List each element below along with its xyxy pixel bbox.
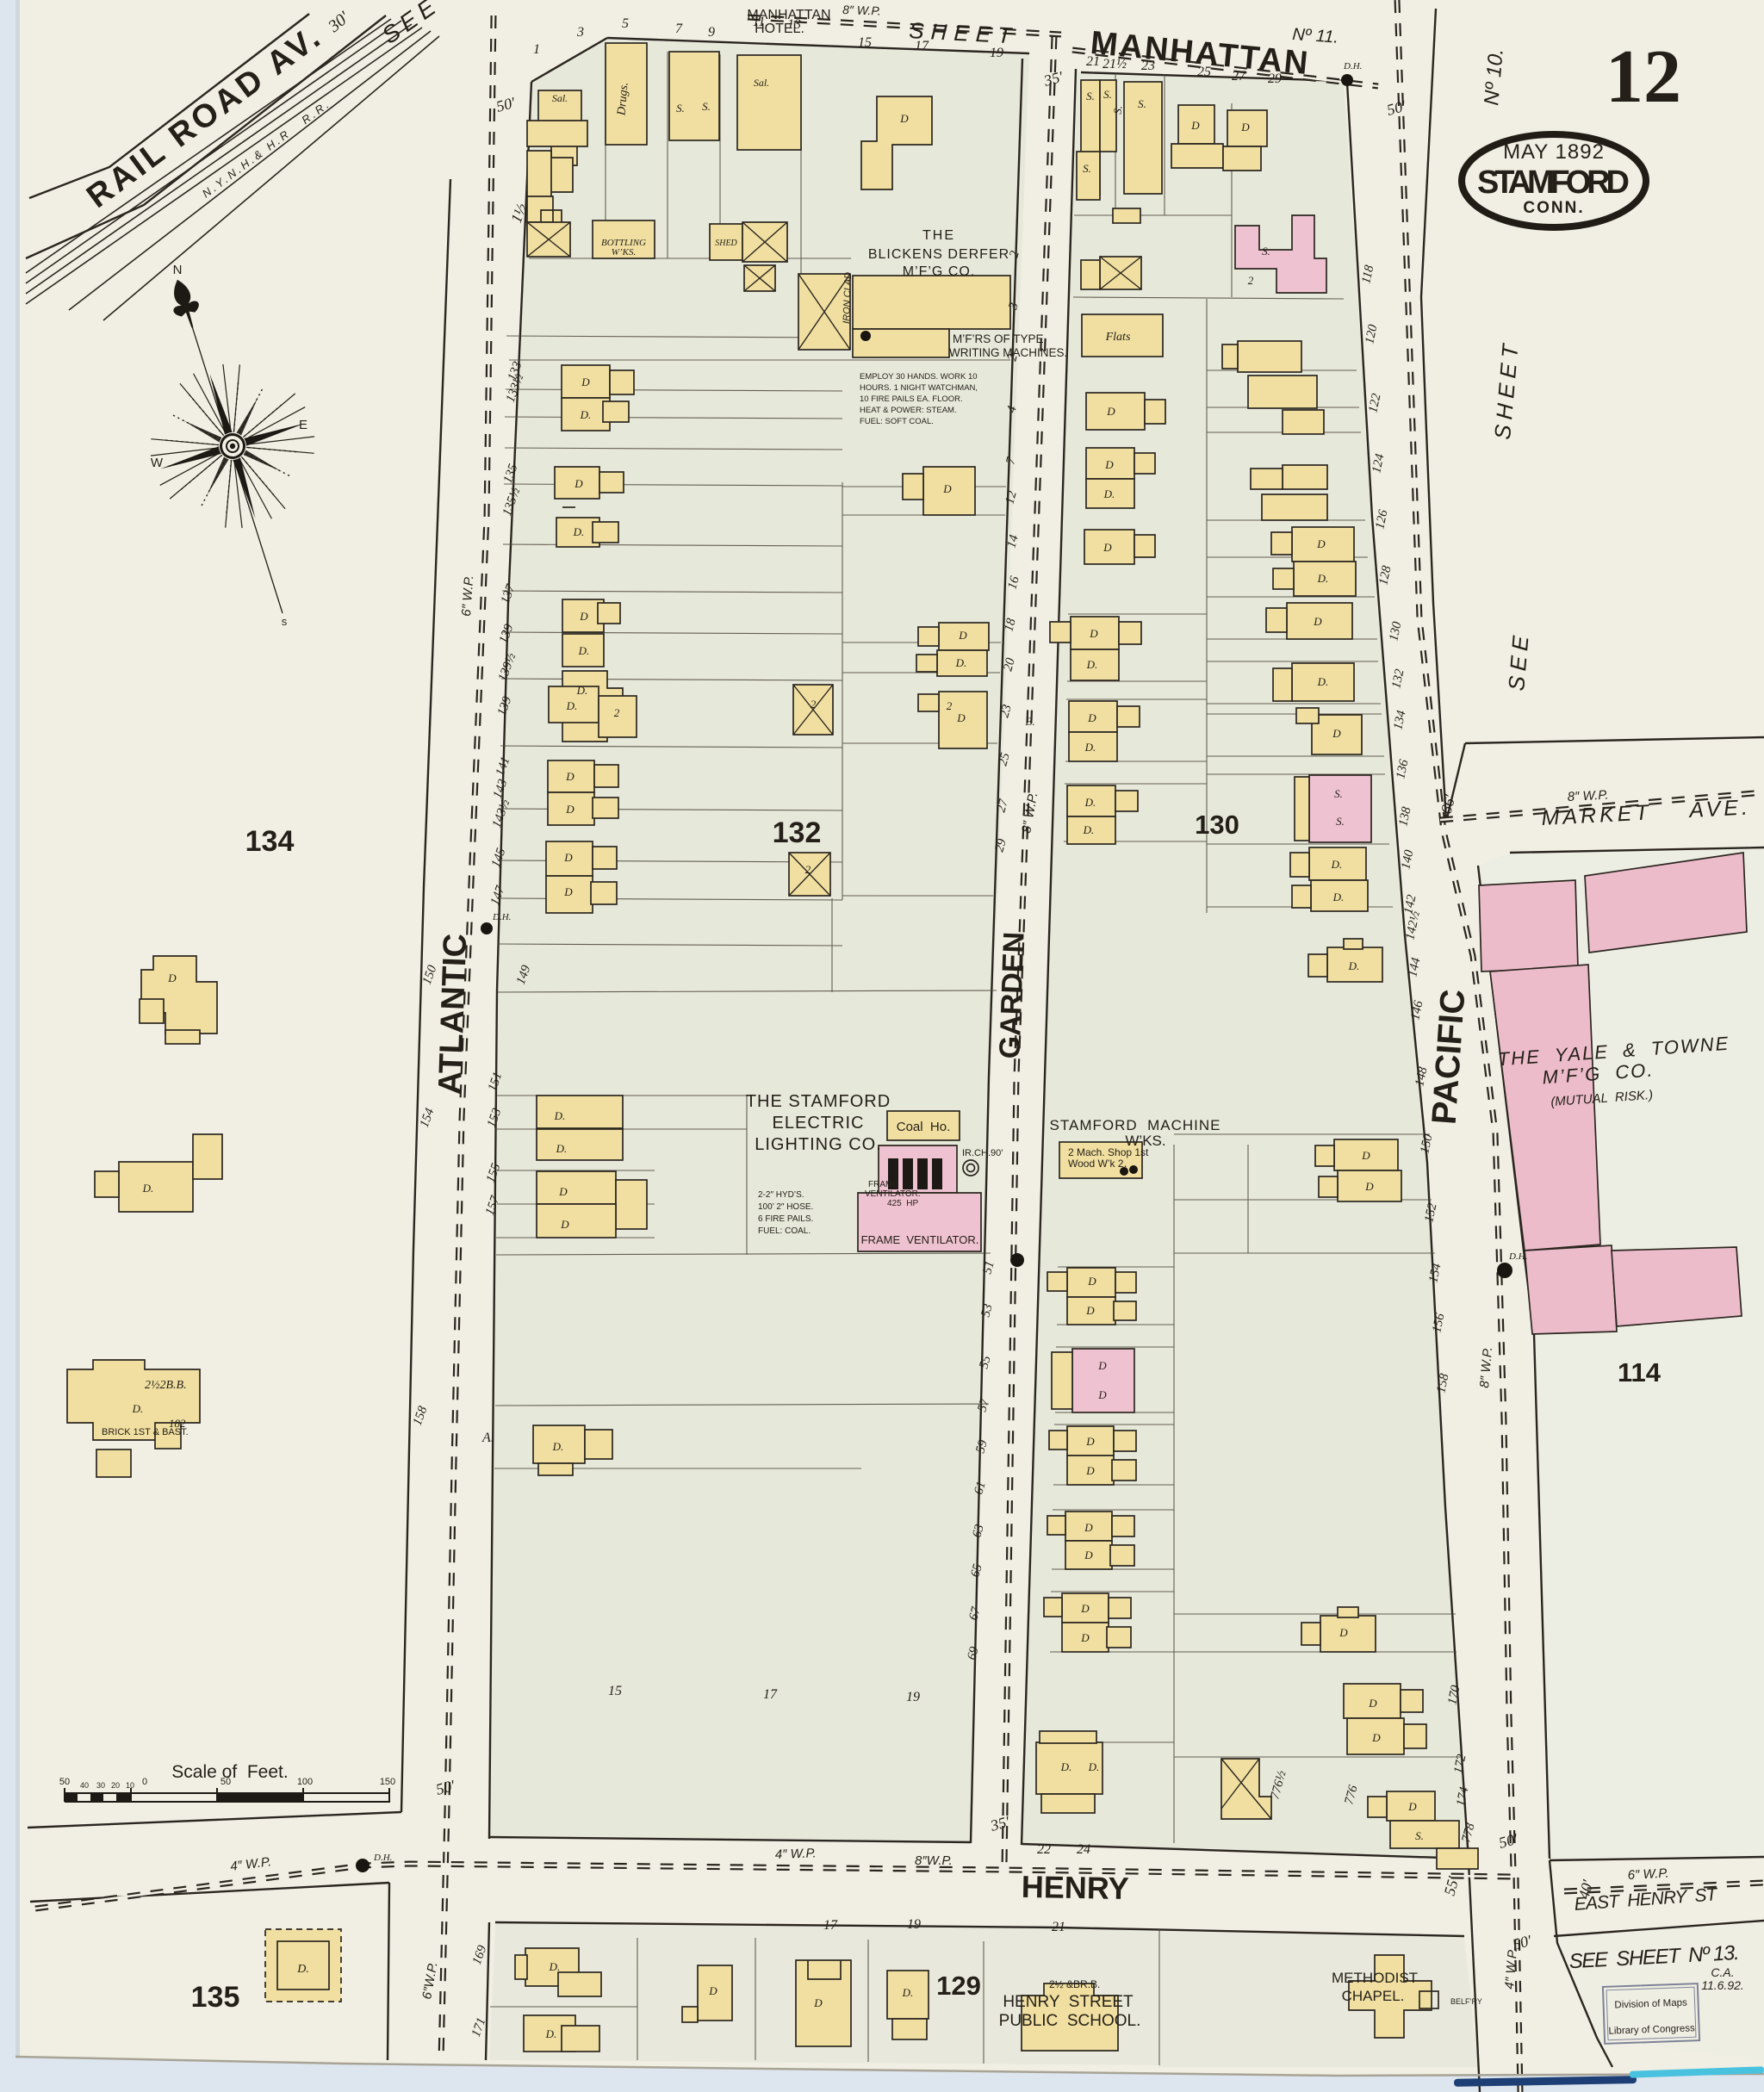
svg-text:S.: S. — [676, 102, 685, 115]
svg-text:D: D — [1106, 405, 1115, 418]
svg-text:8″W.P.: 8″W.P. — [915, 1853, 953, 1868]
svg-text:21: 21 — [1086, 54, 1100, 69]
svg-text:6 FIRE PAILS.: 6 FIRE PAILS. — [758, 1214, 813, 1224]
svg-text:E: E — [299, 418, 307, 432]
svg-text:D.: D. — [1348, 959, 1360, 972]
svg-text:D: D — [942, 482, 952, 495]
svg-text:S.: S. — [1103, 88, 1112, 101]
svg-text:100: 100 — [297, 1777, 313, 1787]
svg-text:D: D — [1407, 1800, 1417, 1813]
svg-text:D: D — [1332, 727, 1341, 740]
svg-text:S.: S. — [1262, 245, 1270, 258]
svg-text:EMPLOY 30 HANDS. WORK 10: EMPLOY 30 HANDS. WORK 10 — [860, 372, 978, 382]
svg-text:D: D — [563, 885, 573, 898]
svg-text:LIGHTING CO.: LIGHTING CO. — [755, 1135, 882, 1154]
svg-text:W: W — [151, 456, 164, 470]
svg-text:BRICK 1ST & BAST.: BRICK 1ST & BAST. — [102, 1427, 189, 1437]
svg-text:D: D — [1361, 1149, 1370, 1162]
svg-text:D.: D. — [545, 2027, 557, 2040]
svg-text:24: 24 — [1077, 1842, 1090, 1857]
svg-text:15: 15 — [608, 1684, 622, 1698]
svg-text:D.: D. — [576, 684, 588, 697]
svg-text:M’F’G CO.: M’F’G CO. — [903, 264, 976, 279]
svg-text:425 HP: 425 HP — [887, 1199, 918, 1208]
svg-text:s: s — [282, 615, 288, 628]
svg-text:Coal Ho.: Coal Ho. — [897, 1120, 951, 1134]
svg-text:D.: D. — [1332, 891, 1345, 903]
svg-text:1: 1 — [533, 42, 540, 57]
svg-text:22: 22 — [1037, 1842, 1051, 1857]
svg-text:S.: S. — [1086, 90, 1095, 102]
svg-text:D: D — [1190, 119, 1200, 132]
svg-text:100’ 2″ HOSE.: 100’ 2″ HOSE. — [758, 1202, 813, 1212]
svg-text:150: 150 — [380, 1777, 395, 1787]
svg-text:D: D — [1313, 615, 1322, 628]
svg-text:C.A.: C.A. — [1711, 1965, 1734, 1979]
svg-text:D.: D. — [580, 408, 592, 421]
svg-text:50: 50 — [59, 1777, 70, 1787]
svg-text:D: D — [899, 112, 909, 125]
svg-text:METHODIST: METHODIST — [1332, 1970, 1418, 1986]
svg-text:FRAME VENTILATOR.: FRAME VENTILATOR. — [861, 1233, 979, 1246]
svg-text:S.: S. — [1334, 787, 1343, 800]
svg-text:MAY 1892: MAY 1892 — [1503, 140, 1605, 164]
svg-text:D.: D. — [902, 1986, 914, 1999]
svg-text:19: 19 — [990, 46, 1003, 60]
svg-text:W’KS.: W’KS. — [612, 247, 636, 258]
svg-text:10 FIRE PAILS EA. FLOOR.: 10 FIRE PAILS EA. FLOOR. — [860, 394, 963, 404]
svg-text:D: D — [956, 711, 966, 724]
svg-text:21½: 21½ — [1102, 57, 1127, 71]
svg-text:D: D — [1364, 1180, 1374, 1193]
svg-text:D: D — [558, 1185, 568, 1198]
svg-text:6″ W.P.: 6″ W.P. — [459, 574, 476, 617]
svg-text:VENTILATOR.: VENTILATOR. — [865, 1189, 921, 1199]
svg-text:B.: B. — [1025, 715, 1034, 728]
svg-text:D: D — [565, 770, 575, 783]
svg-text:D: D — [167, 972, 177, 984]
svg-text:D: D — [1080, 1631, 1090, 1644]
svg-text:Wood W’k 2․: Wood W’k 2․ — [1068, 1158, 1127, 1170]
svg-text:ATLANTIC: ATLANTIC — [432, 933, 475, 1096]
svg-text:FUEL: COAL.: FUEL: COAL. — [758, 1226, 811, 1236]
svg-text:132: 132 — [773, 816, 822, 849]
svg-text:D.: D. — [556, 1142, 568, 1155]
svg-text:6″ W.P.: 6″ W.P. — [1627, 1866, 1669, 1883]
svg-text:D.: D. — [549, 1960, 561, 1973]
svg-text:D: D — [581, 376, 590, 388]
svg-text:D.: D. — [1317, 572, 1329, 585]
svg-text:Flats: Flats — [1105, 331, 1131, 344]
svg-text:19: 19 — [907, 1917, 921, 1932]
svg-text:D.: D. — [566, 699, 578, 712]
svg-text:D: D — [1089, 627, 1098, 640]
svg-text:S.: S. — [702, 100, 711, 113]
svg-text:19: 19 — [906, 1690, 920, 1704]
svg-text:13: 13 — [787, 17, 801, 32]
svg-text:D: D — [560, 1218, 569, 1231]
svg-text:23: 23 — [1141, 59, 1155, 73]
svg-text:D: D — [958, 629, 967, 642]
svg-text:114: 114 — [1618, 1357, 1662, 1387]
svg-text:11.6.92.: 11.6.92. — [1701, 1978, 1744, 1992]
svg-text:D.: D. — [578, 644, 590, 657]
svg-text:S.: S. — [1111, 105, 1125, 115]
svg-text:D: D — [1085, 1464, 1095, 1477]
svg-text:S.: S. — [1083, 162, 1091, 175]
svg-text:2: 2 — [805, 863, 811, 876]
svg-text:D.H.: D.H. — [1343, 61, 1362, 71]
svg-text:CONN.: CONN. — [1523, 199, 1584, 217]
svg-text:BLICKENS DERFER: BLICKENS DERFER — [868, 247, 1009, 262]
svg-text:M’F’RS OF TYPE: M’F’RS OF TYPE — [953, 332, 1044, 345]
svg-text:D.: D. — [1086, 658, 1098, 671]
svg-text:D.: D. — [1317, 675, 1329, 688]
svg-text:2-2″ HYD’S.: 2-2″ HYD’S. — [758, 1190, 804, 1200]
svg-text:2: 2 — [1248, 274, 1254, 287]
svg-text:D.: D. — [573, 525, 585, 538]
svg-text:D: D — [1084, 1521, 1093, 1534]
svg-text:21: 21 — [1052, 1920, 1065, 1934]
svg-text:10: 10 — [126, 1781, 134, 1790]
svg-text:N: N — [173, 263, 183, 277]
svg-text:D: D — [1316, 537, 1326, 550]
svg-text:D: D — [574, 477, 583, 490]
svg-text:2: 2 — [811, 698, 817, 711]
svg-text:D: D — [1080, 1602, 1090, 1615]
svg-text:D.: D. — [1088, 1760, 1100, 1773]
svg-text:20: 20 — [111, 1781, 120, 1790]
svg-text:50: 50 — [220, 1777, 231, 1787]
svg-text:Sal.: Sal. — [754, 77, 769, 89]
svg-text:D: D — [708, 1984, 717, 1997]
svg-text:D.H.: D.H. — [1508, 1251, 1527, 1262]
svg-text:8″ W.P.: 8″ W.P. — [1567, 788, 1609, 804]
svg-text:0: 0 — [142, 1777, 147, 1787]
svg-text:129: 129 — [936, 1971, 981, 2001]
svg-text:Nº 10.: Nº 10. — [1480, 47, 1508, 106]
svg-text:D: D — [1085, 1304, 1095, 1317]
svg-text:SHED: SHED — [715, 239, 737, 248]
svg-text:17: 17 — [823, 1918, 838, 1933]
svg-text:HENRY: HENRY — [1022, 1869, 1129, 1906]
svg-text:STAMFORD: STAMFORD — [1477, 165, 1630, 201]
svg-text:2½ &BR.B.: 2½ &BR.B. — [1049, 1978, 1100, 1990]
svg-text:FRAME: FRAME — [868, 1180, 898, 1189]
svg-text:D.: D. — [142, 1182, 154, 1195]
svg-text:THE STAMFORD: THE STAMFORD — [746, 1092, 891, 1111]
svg-text:9: 9 — [708, 25, 715, 40]
svg-text:CHAPEL.: CHAPEL. — [1342, 1988, 1405, 2004]
svg-text:D: D — [565, 803, 575, 816]
svg-text:D.: D. — [955, 656, 967, 669]
svg-text:25: 25 — [1197, 65, 1211, 79]
svg-text:5: 5 — [622, 16, 629, 31]
svg-text:8″ W.P.: 8″ W.P. — [842, 3, 881, 18]
svg-text:STAMFORD MACHINE: STAMFORD MACHINE — [1050, 1117, 1221, 1133]
svg-text:2: 2 — [947, 699, 953, 712]
svg-text:A.: A. — [481, 1431, 494, 1445]
svg-text:HEAT & POWER: STEAM.: HEAT & POWER: STEAM. — [860, 406, 957, 415]
svg-text:D.: D. — [296, 1963, 309, 1976]
svg-text:ELECTRIC: ELECTRIC — [773, 1114, 865, 1133]
svg-text:D: D — [1084, 1549, 1093, 1561]
svg-text:D: D — [813, 1996, 823, 2009]
svg-text:Sal.: Sal. — [552, 92, 568, 104]
svg-text:D.: D. — [1060, 1760, 1072, 1773]
svg-text:BELF’RY: BELF’RY — [1450, 1997, 1482, 2006]
svg-text:7: 7 — [675, 22, 683, 36]
svg-text:30: 30 — [96, 1781, 105, 1790]
svg-text:29: 29 — [1268, 71, 1282, 86]
svg-text:D.: D. — [554, 1109, 566, 1122]
svg-text:FUEL: SOFT COAL.: FUEL: SOFT COAL. — [860, 417, 934, 426]
svg-text:HOURS. 1 NIGHT WATCHMAN,: HOURS. 1 NIGHT WATCHMAN, — [860, 383, 978, 393]
svg-text:D: D — [1339, 1626, 1348, 1639]
svg-text:2 Mach. Shop 1st: 2 Mach. Shop 1st — [1068, 1146, 1149, 1158]
svg-text:D: D — [1102, 541, 1112, 554]
svg-text:4″ W.P.: 4″ W.P. — [775, 1846, 817, 1862]
svg-text:S.: S. — [1138, 97, 1146, 110]
svg-text:D: D — [563, 851, 573, 864]
svg-text:Nº 11.: Nº 11. — [1292, 25, 1339, 47]
svg-text:15: 15 — [858, 35, 872, 50]
svg-text:40: 40 — [80, 1781, 89, 1790]
svg-text:27: 27 — [1232, 69, 1246, 84]
svg-text:D: D — [1085, 1435, 1095, 1448]
svg-text:D: D — [1087, 711, 1096, 724]
svg-text:D: D — [1371, 1731, 1381, 1744]
svg-text:D.: D. — [1084, 741, 1096, 754]
svg-text:D: D — [1104, 458, 1114, 471]
svg-text:GARDEN: GARDEN — [993, 931, 1030, 1059]
svg-text:D.: D. — [552, 1440, 564, 1453]
svg-text:D.H.: D.H. — [373, 1853, 392, 1863]
svg-text:134: 134 — [245, 825, 295, 858]
svg-text:D: D — [1240, 121, 1250, 133]
svg-text:S.: S. — [1415, 1829, 1424, 1842]
svg-text:D: D — [579, 610, 588, 623]
svg-text:THE: THE — [922, 228, 955, 243]
svg-text:IR.CH.90′: IR.CH.90′ — [962, 1148, 1003, 1158]
svg-text:S.: S. — [1336, 815, 1345, 828]
svg-text:12: 12 — [1606, 35, 1681, 119]
svg-text:135: 135 — [191, 1981, 240, 2014]
svg-text:D.: D. — [1083, 823, 1095, 836]
svg-text:130: 130 — [1195, 810, 1239, 840]
svg-text:D.: D. — [1331, 858, 1343, 871]
svg-text:D.H.: D.H. — [492, 912, 511, 922]
svg-text:3: 3 — [576, 25, 584, 40]
svg-text:IRON CLAD: IRON CLAD — [842, 272, 854, 324]
svg-text:17: 17 — [915, 39, 929, 53]
svg-text:D.: D. — [1084, 796, 1096, 809]
svg-text:D: D — [1097, 1388, 1107, 1401]
svg-text:HENRY STREET: HENRY STREET — [1003, 1993, 1134, 2011]
svg-text:PUBLIC SCHOOL.: PUBLIC SCHOOL. — [999, 2012, 1141, 2030]
svg-text:2: 2 — [614, 706, 620, 719]
svg-text:D.: D. — [132, 1402, 144, 1415]
svg-text:11: 11 — [753, 15, 766, 29]
svg-text:D.: D. — [1103, 487, 1115, 500]
svg-text:D: D — [1097, 1359, 1107, 1372]
svg-text:2½2B.B.: 2½2B.B. — [145, 1379, 187, 1392]
svg-text:D: D — [1368, 1697, 1377, 1710]
svg-text:D: D — [1087, 1275, 1096, 1288]
svg-text:17: 17 — [763, 1687, 778, 1702]
svg-text:SEE: SEE — [1503, 630, 1534, 692]
